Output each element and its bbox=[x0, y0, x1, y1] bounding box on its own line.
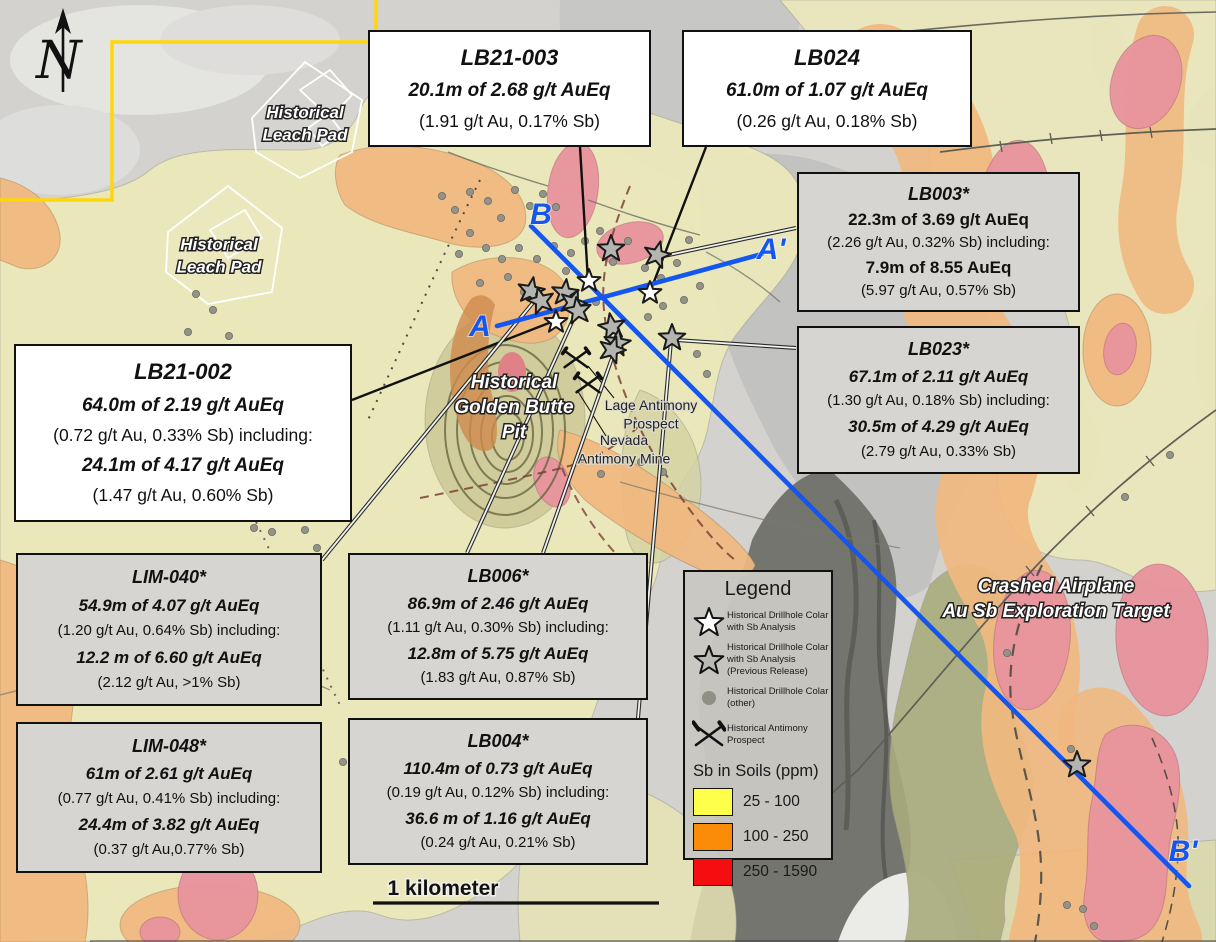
callout-line: (0.72 g/t Au, 0.33% Sb) including: bbox=[22, 426, 344, 446]
legend-item-label: Historical AntimonyProspect bbox=[727, 723, 808, 747]
callout-line: 54.9m of 4.07 g/t AuEq bbox=[24, 596, 314, 615]
drill-callout-LIM-040: LIM-040*54.9m of 4.07 g/t AuEq(1.20 g/t … bbox=[16, 553, 322, 706]
map-label-line: Historical bbox=[266, 103, 345, 122]
drillhole-dot-marker bbox=[438, 192, 445, 199]
legend-item-label-line: (Previous Release) bbox=[727, 666, 828, 678]
legend-item-label: Historical Drillhole Colar(other) bbox=[727, 686, 828, 710]
map-label-line: Lage Antimony bbox=[605, 397, 698, 413]
callout-title: LB004* bbox=[356, 731, 640, 751]
drillhole-dot-marker bbox=[1063, 901, 1070, 908]
drillhole-dot-marker bbox=[685, 236, 692, 243]
drillhole-dot-marker bbox=[1121, 493, 1128, 500]
legend-item-label: Historical Drillhole Colarwith Sb Analys… bbox=[727, 642, 828, 678]
drill-callout-LB21-003: LB21-00320.1m of 2.68 g/t AuEq(1.91 g/t … bbox=[368, 30, 651, 147]
callout-line: 24.4m of 3.82 g/t AuEq bbox=[24, 815, 314, 834]
callout-line: 12.2 m of 6.60 g/t AuEq bbox=[24, 648, 314, 667]
callout-title: LB003* bbox=[805, 184, 1072, 204]
callout-line: (0.26 g/t Au, 0.18% Sb) bbox=[690, 112, 964, 132]
drillhole-dot-marker bbox=[597, 470, 604, 477]
drillhole-dot-marker bbox=[484, 197, 491, 204]
legend-swatch-row: 250 - 1590 bbox=[691, 858, 825, 886]
map-label-line: Historical bbox=[471, 372, 558, 393]
drill-callout-LB003: LB003*22.3m of 3.69 g/t AuEq(2.26 g/t Au… bbox=[797, 172, 1080, 312]
legend-soil-swatches: 25 - 100100 - 250250 - 1590 bbox=[691, 788, 825, 886]
drillhole-dot-marker bbox=[268, 528, 275, 535]
legend-item-icon bbox=[691, 643, 727, 677]
callout-line: (0.77 g/t Au, 0.41% Sb) including: bbox=[24, 791, 314, 808]
drill-callout-LB024: LB02461.0m of 1.07 g/t AuEq(0.26 g/t Au,… bbox=[682, 30, 972, 147]
callout-line: 61m of 2.61 g/t AuEq bbox=[24, 764, 314, 783]
legend-item-label-line: Historical Antimony bbox=[727, 723, 808, 735]
drillhole-dot-marker bbox=[466, 188, 473, 195]
callout-line: (2.79 g/t Au, 0.33% Sb) bbox=[805, 444, 1072, 461]
drillhole-dot-marker bbox=[1079, 905, 1086, 912]
drillhole-dot-marker bbox=[644, 313, 651, 320]
drillhole-dot-marker bbox=[466, 229, 473, 236]
callout-title: LIM-048* bbox=[24, 736, 314, 756]
white-star-icon bbox=[692, 605, 726, 639]
legend-item-icon bbox=[691, 605, 727, 639]
scale-label: 1 kilometer bbox=[388, 877, 499, 900]
legend-swatch-row: 25 - 100 bbox=[691, 788, 825, 816]
callout-line: (0.37 g/t Au,0.77% Sb) bbox=[24, 842, 314, 859]
crossed-hammers-icon bbox=[692, 718, 726, 752]
drillhole-dot-marker bbox=[1067, 745, 1074, 752]
legend-item: Historical Drillhole Colarwith Sb Analys… bbox=[691, 642, 825, 678]
callout-line: 20.1m of 2.68 g/t AuEq bbox=[376, 80, 643, 101]
drillhole-dot-marker bbox=[693, 350, 700, 357]
callout-line: 110.4m of 0.73 g/t AuEq bbox=[356, 759, 640, 778]
map-label-line: Pit bbox=[502, 422, 527, 443]
drillhole-dot-marker bbox=[680, 296, 687, 303]
soil-swatch-label: 100 - 250 bbox=[743, 828, 809, 846]
drillhole-dot-marker bbox=[1090, 922, 1097, 929]
map-label-line: Leach Pad bbox=[176, 257, 262, 276]
callout-title: LB024 bbox=[690, 46, 964, 71]
drillhole-dot-marker bbox=[498, 255, 505, 262]
drillhole-dot-marker bbox=[451, 206, 458, 213]
drillhole-dot-marker bbox=[552, 203, 559, 210]
drillhole-dot-marker bbox=[313, 544, 320, 551]
drillhole-dot-marker bbox=[673, 259, 680, 266]
legend-item-label-line: (other) bbox=[727, 698, 828, 710]
map-figure: N 1 kilometer HistoricalLeach PadHistori… bbox=[0, 0, 1216, 942]
gray-star-icon bbox=[692, 643, 726, 677]
drill-callout-LB21-002: LB21-00264.0m of 2.19 g/t AuEq(0.72 g/t … bbox=[14, 344, 352, 522]
drillhole-dot-marker bbox=[624, 237, 631, 244]
callout-line: 36.6 m of 1.16 g/t AuEq bbox=[356, 809, 640, 828]
callout-line: 64.0m of 2.19 g/t AuEq bbox=[22, 395, 344, 416]
drillhole-dot-marker bbox=[515, 244, 522, 251]
section-label: A bbox=[468, 310, 491, 343]
drillhole-dot-marker bbox=[476, 279, 483, 286]
drill-callout-LB023: LB023*67.1m of 2.11 g/t AuEq(1.30 g/t Au… bbox=[797, 326, 1080, 474]
map-label-line: Leach Pad bbox=[262, 125, 348, 144]
callout-line: 30.5m of 4.29 g/t AuEq bbox=[805, 417, 1072, 436]
drillhole-dot-marker bbox=[703, 370, 710, 377]
map-label-line: Nevada bbox=[600, 432, 648, 448]
drill-callout-LB006: LB006*86.9m of 2.46 g/t AuEq(1.11 g/t Au… bbox=[348, 553, 648, 700]
callout-line: 12.8m of 5.75 g/t AuEq bbox=[356, 644, 640, 663]
callout-line: 86.9m of 2.46 g/t AuEq bbox=[356, 594, 640, 613]
drillhole-dot-marker bbox=[567, 249, 574, 256]
map-label-line: Prospect bbox=[623, 415, 678, 431]
drill-callout-LIM-048: LIM-048*61m of 2.61 g/t AuEq(0.77 g/t Au… bbox=[16, 722, 322, 873]
callout-line: 7.9m of 8.55 AuEq bbox=[805, 258, 1072, 277]
drillhole-dot-marker bbox=[596, 227, 603, 234]
drillhole-dot-marker bbox=[659, 302, 666, 309]
legend-item-icon bbox=[691, 681, 727, 715]
soil-color-swatch bbox=[693, 858, 733, 886]
callout-line: 67.1m of 2.11 g/t AuEq bbox=[805, 367, 1072, 386]
callout-line: (1.30 g/t Au, 0.18% Sb) including: bbox=[805, 393, 1072, 410]
legend-title: Legend bbox=[691, 578, 825, 601]
callout-title: LIM-040* bbox=[24, 567, 314, 587]
callout-line: (1.20 g/t Au, 0.64% Sb) including: bbox=[24, 623, 314, 640]
soil-color-swatch bbox=[693, 823, 733, 851]
section-label: B' bbox=[1169, 835, 1199, 868]
legend-item-label-line: Historical Drillhole Colar bbox=[727, 610, 828, 622]
legend-item-label-line: Historical Drillhole Colar bbox=[727, 686, 828, 698]
drillhole-dot-marker bbox=[225, 332, 232, 339]
drillhole-dot-marker bbox=[209, 306, 216, 313]
drillhole-dot-marker bbox=[609, 258, 616, 265]
map-label-line: Antimony Mine bbox=[578, 450, 671, 466]
legend-item-label: Historical Drillhole Colarwith Sb Analys… bbox=[727, 610, 828, 634]
legend-item-label-line: Historical Drillhole Colar bbox=[727, 642, 828, 654]
drillhole-dot-marker bbox=[184, 328, 191, 335]
legend-item-label-line: with Sb Analysis bbox=[727, 622, 828, 634]
callout-line: (0.24 g/t Au, 0.21% Sb) bbox=[356, 835, 640, 852]
drillhole-dot-marker bbox=[301, 526, 308, 533]
drillhole-dot-marker bbox=[482, 244, 489, 251]
map-legend: Legend Historical Drillhole Colarwith Sb… bbox=[683, 570, 833, 860]
legend-soils-title: Sb in Soils (ppm) bbox=[693, 762, 825, 781]
drillhole-dot-marker bbox=[539, 190, 546, 197]
callout-line: 24.1m of 4.17 g/t AuEq bbox=[22, 455, 344, 476]
drillhole-dot-marker bbox=[497, 214, 504, 221]
map-label-line: Crashed Airplane bbox=[978, 576, 1135, 597]
legend-item: Historical Drillhole Colar(other) bbox=[691, 681, 825, 715]
legend-items: Historical Drillhole Colarwith Sb Analys… bbox=[691, 605, 825, 752]
soil-swatch-label: 250 - 1590 bbox=[743, 863, 817, 881]
drillhole-dot-marker bbox=[1166, 451, 1173, 458]
drillhole-dot-marker bbox=[504, 273, 511, 280]
callout-title: LB006* bbox=[356, 566, 640, 586]
section-label: B bbox=[530, 198, 552, 231]
map-label-line: Historical bbox=[180, 235, 259, 254]
legend-swatch-row: 100 - 250 bbox=[691, 823, 825, 851]
drillhole-dot-marker bbox=[641, 264, 648, 271]
drillhole-dot-marker bbox=[455, 250, 462, 257]
map-label-line: Au Sb Exploration Target bbox=[941, 601, 1170, 622]
map-label-line: Golden Butte bbox=[454, 397, 574, 418]
drill-callout-LB004: LB004*110.4m of 0.73 g/t AuEq(0.19 g/t A… bbox=[348, 718, 648, 865]
gray-dot-icon bbox=[692, 681, 726, 715]
legend-item: Historical Drillhole Colarwith Sb Analys… bbox=[691, 605, 825, 639]
drillhole-dot-marker bbox=[533, 255, 540, 262]
callout-line: (1.11 g/t Au, 0.30% Sb) including: bbox=[356, 620, 640, 637]
callout-title: LB21-003 bbox=[376, 46, 643, 71]
callout-line: 22.3m of 3.69 g/t AuEq bbox=[805, 210, 1072, 229]
callout-line: (1.91 g/t Au, 0.17% Sb) bbox=[376, 112, 643, 132]
callout-line: (2.12 g/t Au, >1% Sb) bbox=[24, 675, 314, 692]
callout-line: 61.0m of 1.07 g/t AuEq bbox=[690, 80, 964, 101]
north-letter: N bbox=[34, 31, 83, 91]
legend-item: Historical AntimonyProspect bbox=[691, 718, 825, 752]
callout-line: (0.19 g/t Au, 0.12% Sb) including: bbox=[356, 785, 640, 802]
legend-item-label-line: Prospect bbox=[727, 735, 808, 747]
callout-line: (2.26 g/t Au, 0.32% Sb) including: bbox=[805, 235, 1072, 252]
soil-color-swatch bbox=[693, 788, 733, 816]
drillhole-dot-marker bbox=[511, 186, 518, 193]
drillhole-dot-marker bbox=[696, 282, 703, 289]
callout-title: LB023* bbox=[805, 339, 1072, 359]
callout-line: (5.97 g/t Au, 0.57% Sb) bbox=[805, 283, 1072, 300]
drillhole-dot-marker bbox=[339, 758, 346, 765]
section-label: A' bbox=[756, 233, 787, 266]
drillhole-dot-marker bbox=[562, 267, 569, 274]
callout-line: (1.83 g/t Au, 0.87% Sb) bbox=[356, 670, 640, 687]
legend-item-label-line: with Sb Analysis bbox=[727, 654, 828, 666]
drillhole-dot-marker bbox=[1003, 649, 1010, 656]
legend-item-icon bbox=[691, 718, 727, 752]
callout-line: (1.47 g/t Au, 0.60% Sb) bbox=[22, 486, 344, 506]
soil-swatch-label: 25 - 100 bbox=[743, 793, 800, 811]
drillhole-dot-marker bbox=[192, 290, 199, 297]
callout-title: LB21-002 bbox=[22, 360, 344, 385]
drillhole-dot-marker bbox=[250, 524, 257, 531]
